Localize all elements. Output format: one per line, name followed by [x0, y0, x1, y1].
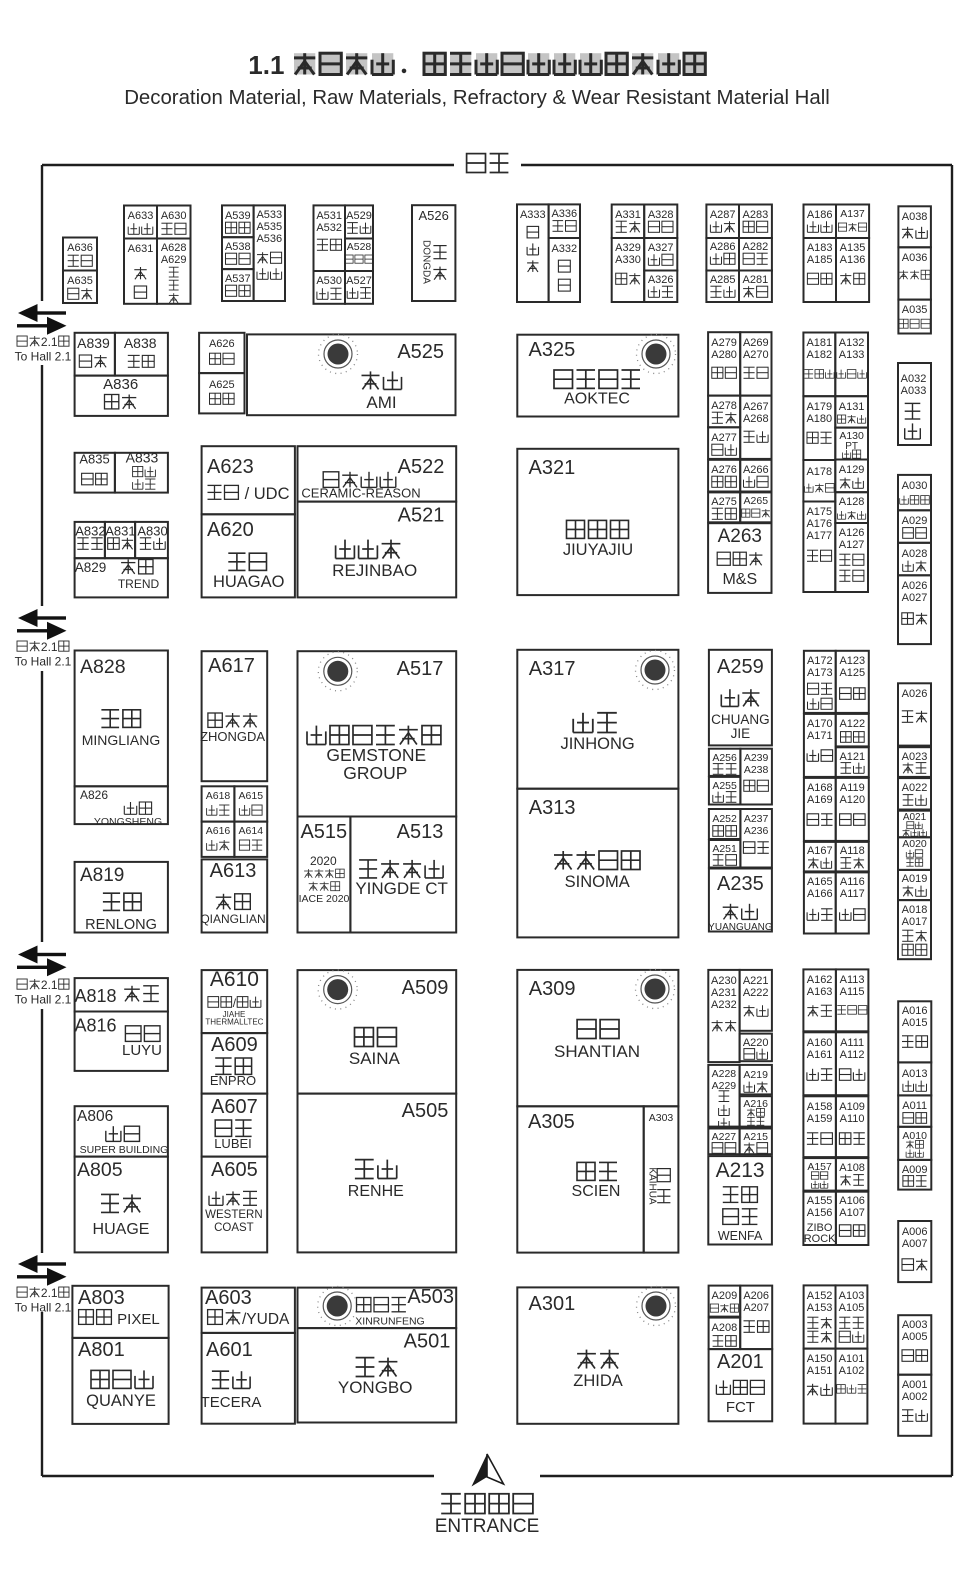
- svg-text:A020: A020: [902, 838, 927, 850]
- svg-text:A165: A165: [807, 876, 833, 888]
- svg-text:A278: A278: [711, 400, 737, 412]
- svg-text:A232: A232: [711, 999, 737, 1011]
- svg-text:A270: A270: [743, 349, 769, 361]
- svg-text:HUAGE: HUAGE: [93, 1221, 150, 1238]
- svg-text:A818: A818: [74, 986, 116, 1006]
- svg-text:ENPRO: ENPRO: [210, 1073, 256, 1088]
- svg-text:A527: A527: [346, 275, 372, 287]
- svg-text:A536: A536: [256, 233, 282, 245]
- svg-text:A616: A616: [206, 825, 231, 837]
- svg-text:ROCK: ROCK: [804, 1233, 836, 1245]
- svg-text:A155: A155: [807, 1195, 833, 1207]
- svg-text:QIANGLIAN: QIANGLIAN: [200, 912, 265, 926]
- svg-text:A238: A238: [744, 764, 769, 776]
- svg-text:A175: A175: [806, 506, 832, 518]
- svg-text:A105: A105: [839, 1302, 865, 1314]
- svg-text:A180: A180: [806, 413, 832, 425]
- svg-text:A256: A256: [712, 752, 737, 764]
- svg-text:A153: A153: [807, 1302, 833, 1314]
- svg-text:HUAGAO: HUAGAO: [213, 573, 285, 591]
- svg-text:RENHE: RENHE: [348, 1183, 404, 1200]
- svg-text:A539: A539: [225, 210, 251, 222]
- svg-text:DONGDA: DONGDA: [421, 240, 432, 284]
- svg-text:YONGSHENG: YONGSHENG: [94, 816, 162, 828]
- svg-text:A530: A530: [316, 275, 342, 287]
- svg-text:A206: A206: [743, 1290, 769, 1302]
- svg-text:A215: A215: [743, 1131, 768, 1143]
- svg-text:GROUP: GROUP: [343, 763, 407, 783]
- svg-text:A018: A018: [902, 904, 928, 916]
- svg-text:A826: A826: [80, 788, 108, 802]
- svg-text:2020: 2020: [310, 854, 337, 868]
- svg-text:2.1: 2.1: [41, 1286, 58, 1300]
- svg-text:A268: A268: [743, 413, 769, 425]
- svg-text:A001: A001: [902, 1379, 928, 1391]
- svg-text:A326: A326: [648, 274, 674, 286]
- svg-text:A136: A136: [840, 254, 866, 266]
- svg-text:A805: A805: [77, 1159, 123, 1181]
- svg-text:A330: A330: [615, 254, 641, 266]
- svg-text:A526: A526: [419, 208, 449, 223]
- svg-text:A832: A832: [75, 524, 105, 539]
- svg-text:A125: A125: [839, 667, 865, 679]
- svg-text:A126: A126: [839, 527, 865, 539]
- svg-text:LUYU: LUYU: [122, 1042, 162, 1059]
- svg-text:To Hall 2.1: To Hall 2.1: [15, 993, 72, 1007]
- svg-text:A201: A201: [717, 1351, 764, 1373]
- svg-text:A209: A209: [712, 1290, 738, 1302]
- svg-text:A186: A186: [807, 209, 833, 221]
- svg-text:To Hall 2.1: To Hall 2.1: [15, 350, 72, 364]
- svg-text:A630: A630: [161, 210, 187, 222]
- svg-text:A178: A178: [806, 466, 832, 478]
- svg-text:A265: A265: [744, 495, 769, 507]
- svg-text:A235: A235: [717, 873, 764, 895]
- svg-text:A152: A152: [807, 1290, 833, 1302]
- svg-text:A269: A269: [743, 337, 769, 349]
- svg-text:A829: A829: [75, 560, 107, 575]
- svg-text:A228: A228: [712, 1068, 737, 1080]
- svg-text:A252: A252: [712, 813, 737, 825]
- svg-text:A309: A309: [529, 978, 576, 1000]
- svg-text:A605: A605: [211, 1159, 258, 1181]
- svg-text:A027: A027: [902, 592, 928, 604]
- svg-text:A277: A277: [711, 432, 737, 444]
- svg-text:A236: A236: [744, 825, 769, 837]
- svg-text:A635: A635: [67, 275, 93, 287]
- svg-text:A017: A017: [902, 916, 928, 928]
- svg-text:A529: A529: [346, 210, 372, 222]
- svg-text:A221: A221: [743, 975, 769, 987]
- svg-text:SCIEN: SCIEN: [572, 1183, 621, 1200]
- svg-text:A177: A177: [806, 530, 832, 542]
- svg-text:XINRUNFENG: XINRUNFENG: [355, 1315, 424, 1327]
- svg-text:A115: A115: [840, 986, 865, 998]
- svg-text:A537: A537: [225, 273, 251, 285]
- svg-text:A816: A816: [74, 1016, 116, 1036]
- svg-text:2.1: 2.1: [41, 978, 58, 992]
- svg-text:A117: A117: [840, 888, 865, 900]
- svg-text:A220: A220: [743, 1037, 769, 1049]
- svg-text:M&S: M&S: [722, 571, 757, 588]
- svg-text:A022: A022: [902, 782, 928, 794]
- svg-text:ZHONGDA: ZHONGDA: [200, 729, 265, 744]
- svg-text:A610: A610: [210, 968, 259, 991]
- svg-text:A629: A629: [161, 254, 187, 266]
- svg-text:A102: A102: [839, 1365, 865, 1377]
- svg-text:SUPER BUILDING: SUPER BUILDING: [80, 1144, 169, 1156]
- svg-text:A267: A267: [743, 401, 769, 413]
- svg-text:A303: A303: [649, 1112, 674, 1124]
- svg-text:A636: A636: [67, 242, 93, 254]
- svg-text:A535: A535: [256, 221, 282, 233]
- svg-text:A032: A032: [901, 373, 927, 385]
- svg-text:A607: A607: [211, 1096, 258, 1118]
- svg-text:RENLONG: RENLONG: [85, 917, 157, 933]
- svg-text:ZHIDA: ZHIDA: [573, 1372, 623, 1390]
- svg-text:A328: A328: [648, 209, 674, 221]
- svg-text:A603: A603: [205, 1287, 252, 1309]
- svg-text:A011: A011: [902, 1100, 927, 1112]
- svg-text:A015: A015: [902, 1017, 928, 1029]
- svg-text:/ UDC: / UDC: [240, 485, 290, 503]
- svg-text:A327: A327: [648, 242, 674, 254]
- svg-text:WENFA: WENFA: [718, 1229, 763, 1243]
- svg-text:A123: A123: [839, 655, 865, 667]
- svg-text:A121: A121: [839, 751, 865, 763]
- svg-text:A329: A329: [615, 242, 641, 254]
- svg-text:A819: A819: [80, 865, 124, 886]
- svg-text:A528: A528: [347, 241, 372, 253]
- svg-text:A166: A166: [807, 888, 833, 900]
- svg-text:A156: A156: [807, 1207, 833, 1219]
- svg-text:THERMALLTEC: THERMALLTEC: [205, 1018, 263, 1027]
- svg-text:A172: A172: [807, 655, 833, 667]
- svg-text:A128: A128: [839, 496, 865, 508]
- svg-text:A019: A019: [902, 873, 928, 885]
- svg-text:A116: A116: [840, 876, 865, 888]
- svg-text:A831: A831: [105, 524, 135, 539]
- svg-text:IACE 2020: IACE 2020: [299, 893, 350, 905]
- svg-text:A101: A101: [839, 1353, 865, 1365]
- svg-text:A517: A517: [397, 658, 444, 680]
- svg-text:A336: A336: [551, 208, 577, 220]
- svg-text:A313: A313: [529, 797, 576, 819]
- svg-text:A026: A026: [902, 580, 928, 592]
- svg-text:A503: A503: [407, 1286, 454, 1308]
- svg-text:A157: A157: [807, 1161, 832, 1173]
- svg-text:A150: A150: [807, 1353, 833, 1365]
- svg-text:A321: A321: [529, 457, 576, 479]
- svg-text:A830: A830: [137, 524, 167, 539]
- svg-text:ENTRANCE: ENTRANCE: [435, 1516, 540, 1537]
- svg-text:A231: A231: [711, 987, 737, 999]
- svg-text:A613: A613: [210, 860, 257, 882]
- svg-text:A515: A515: [300, 821, 347, 843]
- svg-text:A633: A633: [128, 210, 154, 222]
- svg-text:A151: A151: [807, 1365, 833, 1377]
- svg-text:A509: A509: [402, 977, 449, 999]
- svg-text:A305: A305: [528, 1111, 575, 1133]
- svg-text:A035: A035: [902, 304, 928, 316]
- svg-text:A110: A110: [840, 1113, 865, 1125]
- svg-text:TREND: TREND: [118, 577, 160, 591]
- svg-text:A229: A229: [712, 1080, 737, 1092]
- svg-text:A625: A625: [209, 379, 235, 391]
- svg-text:JINHONG: JINHONG: [560, 735, 634, 753]
- svg-text:A219: A219: [743, 1069, 768, 1081]
- svg-text:A501: A501: [404, 1331, 451, 1353]
- svg-text:A626: A626: [209, 338, 235, 350]
- svg-text:AOKTEC: AOKTEC: [564, 391, 630, 408]
- svg-text:A601: A601: [206, 1339, 253, 1361]
- svg-text:A255: A255: [712, 780, 737, 792]
- svg-text:A325: A325: [529, 339, 576, 361]
- svg-text:A006: A006: [902, 1226, 928, 1238]
- svg-text:A266: A266: [743, 464, 769, 476]
- svg-text:1.1: 1.1: [248, 50, 291, 80]
- svg-text:A609: A609: [211, 1034, 258, 1056]
- svg-text:To Hall 2.1: To Hall 2.1: [15, 655, 72, 669]
- svg-text:PIXEL: PIXEL: [113, 1311, 160, 1328]
- svg-text:A176: A176: [806, 518, 832, 530]
- svg-text:A179: A179: [806, 401, 832, 413]
- svg-text:A259: A259: [717, 656, 764, 678]
- svg-text:A227: A227: [712, 1131, 737, 1143]
- svg-text:A137: A137: [840, 208, 865, 220]
- svg-text:A162: A162: [807, 974, 833, 986]
- svg-text:SAINA: SAINA: [349, 1049, 401, 1068]
- svg-text:A333: A333: [520, 209, 546, 221]
- svg-text:A181: A181: [806, 337, 832, 349]
- svg-text:A016: A016: [902, 1005, 928, 1017]
- svg-text:A161: A161: [807, 1049, 833, 1061]
- svg-text:A005: A005: [902, 1331, 928, 1343]
- svg-text:A023: A023: [902, 751, 928, 763]
- svg-text:TECERA: TECERA: [201, 1394, 262, 1411]
- svg-text:A036: A036: [902, 252, 928, 264]
- svg-text:A623: A623: [207, 456, 254, 478]
- svg-text:A003: A003: [902, 1319, 928, 1331]
- svg-text:A521: A521: [398, 505, 445, 527]
- svg-text:A119: A119: [840, 782, 865, 794]
- svg-text:A026: A026: [902, 688, 928, 700]
- svg-text:A213: A213: [716, 1159, 765, 1182]
- svg-text:A281: A281: [743, 274, 769, 286]
- svg-text:A505: A505: [402, 1100, 449, 1122]
- svg-text:A239: A239: [744, 752, 769, 764]
- svg-text:A531: A531: [316, 210, 342, 222]
- svg-text:A618: A618: [206, 790, 231, 802]
- svg-text:A163: A163: [807, 986, 833, 998]
- svg-text:A631: A631: [128, 243, 154, 255]
- svg-text:JIE: JIE: [731, 726, 751, 741]
- svg-text:A207: A207: [743, 1302, 769, 1314]
- svg-text:A158: A158: [807, 1101, 833, 1113]
- svg-text:To Hall 2.1: To Hall 2.1: [15, 1301, 72, 1315]
- svg-text:A113: A113: [840, 974, 865, 986]
- svg-text:A532: A532: [316, 222, 342, 234]
- svg-text:A007: A007: [902, 1238, 928, 1250]
- svg-text:A285: A285: [710, 274, 736, 286]
- svg-text:A835: A835: [79, 452, 109, 467]
- svg-text:A002: A002: [902, 1391, 928, 1403]
- svg-text:COAST: COAST: [214, 1222, 254, 1234]
- svg-text:YONGBO: YONGBO: [338, 1378, 413, 1397]
- svg-text:WESTERN: WESTERN: [205, 1209, 263, 1221]
- svg-text:A135: A135: [840, 242, 866, 254]
- svg-text:A131: A131: [839, 401, 865, 413]
- svg-text:A282: A282: [743, 241, 769, 253]
- svg-text:A127: A127: [839, 539, 865, 551]
- svg-text:A287: A287: [710, 209, 736, 221]
- svg-text:A183: A183: [807, 242, 833, 254]
- svg-text:A806: A806: [77, 1108, 113, 1125]
- svg-text:GEMSTONE: GEMSTONE: [326, 745, 426, 765]
- svg-text:A513: A513: [397, 821, 444, 843]
- svg-text:A185: A185: [807, 254, 833, 266]
- svg-text:A171: A171: [807, 730, 833, 742]
- svg-text:YINGDE CT: YINGDE CT: [355, 879, 448, 898]
- svg-text:A170: A170: [807, 718, 833, 730]
- svg-text:LUBEI: LUBEI: [214, 1136, 252, 1151]
- svg-text:A120: A120: [839, 794, 865, 806]
- svg-text:A301: A301: [529, 1293, 576, 1315]
- svg-text:A251: A251: [712, 843, 737, 855]
- svg-text:MINGLIANG: MINGLIANG: [82, 732, 161, 748]
- svg-text:A103: A103: [839, 1290, 865, 1302]
- svg-text:A522: A522: [398, 456, 445, 478]
- svg-text:A230: A230: [711, 975, 737, 987]
- svg-text:A836: A836: [103, 376, 138, 393]
- svg-text:Decoration Material, Raw Mater: Decoration Material, Raw Materials, Refr…: [124, 87, 830, 109]
- svg-text:A317: A317: [529, 658, 576, 680]
- svg-text:A286: A286: [710, 241, 736, 253]
- svg-text:A107: A107: [839, 1207, 865, 1219]
- svg-text:QUANYE: QUANYE: [86, 1392, 156, 1410]
- svg-text:A803: A803: [78, 1287, 125, 1309]
- svg-text:A280: A280: [711, 349, 737, 361]
- svg-text:A222: A222: [743, 987, 769, 999]
- svg-text:A033: A033: [901, 385, 927, 397]
- svg-text:A538: A538: [225, 241, 251, 253]
- svg-text:A029: A029: [902, 515, 928, 527]
- svg-text:KAIHUA: KAIHUA: [647, 1167, 658, 1205]
- svg-text:AMI: AMI: [366, 393, 396, 412]
- svg-text:A620: A620: [207, 519, 254, 541]
- svg-text:A106: A106: [839, 1195, 865, 1207]
- svg-text:A013: A013: [902, 1068, 928, 1080]
- svg-text:A159: A159: [807, 1113, 833, 1125]
- svg-text:A167: A167: [807, 845, 833, 857]
- svg-text:A833: A833: [126, 450, 159, 466]
- svg-text:A615: A615: [239, 790, 264, 802]
- svg-text:A838: A838: [124, 335, 157, 351]
- svg-text:A122: A122: [839, 718, 865, 730]
- svg-text:A021: A021: [903, 812, 927, 823]
- svg-text:A533: A533: [256, 209, 282, 221]
- svg-text:A028: A028: [902, 548, 928, 560]
- svg-text:A332: A332: [551, 243, 577, 255]
- svg-text:A132: A132: [839, 337, 865, 349]
- svg-text:A009: A009: [902, 1164, 928, 1176]
- svg-text:A828: A828: [80, 656, 126, 678]
- svg-text:A275: A275: [711, 496, 737, 508]
- svg-text:A525: A525: [397, 341, 444, 363]
- svg-text:A133: A133: [839, 349, 865, 361]
- svg-text:SINOMA: SINOMA: [565, 873, 630, 891]
- svg-text:A279: A279: [711, 337, 737, 349]
- svg-text:A038: A038: [902, 211, 928, 223]
- svg-text:2.1: 2.1: [41, 335, 58, 349]
- svg-text:A617: A617: [208, 655, 255, 677]
- svg-text:A173: A173: [807, 667, 833, 679]
- svg-text:A263: A263: [718, 526, 762, 547]
- svg-text:A182: A182: [806, 349, 832, 361]
- svg-text:A283: A283: [743, 209, 769, 221]
- svg-text:A614: A614: [239, 825, 264, 837]
- svg-text:CERAMIC-REASON: CERAMIC-REASON: [301, 486, 420, 501]
- svg-text:A628: A628: [161, 242, 187, 254]
- svg-text:2.1: 2.1: [41, 640, 58, 654]
- svg-text:A801: A801: [78, 1339, 125, 1361]
- svg-text:A160: A160: [807, 1037, 833, 1049]
- svg-text:SHANTIAN: SHANTIAN: [554, 1042, 640, 1061]
- svg-text:FCT: FCT: [726, 1399, 755, 1416]
- svg-text:A108: A108: [839, 1162, 865, 1174]
- svg-text:A111: A111: [840, 1037, 864, 1049]
- svg-text:A118: A118: [840, 845, 865, 857]
- svg-text:A208: A208: [712, 1322, 738, 1334]
- svg-text:CHUANG: CHUANG: [711, 712, 770, 727]
- svg-text:A109: A109: [839, 1101, 865, 1113]
- svg-text:A030: A030: [902, 480, 928, 492]
- svg-text:JIUYAJIU: JIUYAJIU: [563, 541, 633, 559]
- svg-text:A169: A169: [807, 794, 833, 806]
- svg-text:/YUDA: /YUDA: [242, 1311, 290, 1328]
- svg-text:A839: A839: [77, 335, 110, 351]
- svg-text:A276: A276: [711, 464, 737, 476]
- svg-text:A129: A129: [839, 464, 865, 476]
- svg-text:A331: A331: [615, 209, 641, 221]
- svg-text:A112: A112: [840, 1049, 865, 1061]
- svg-text:YUANGUANG: YUANGUANG: [708, 922, 773, 933]
- svg-text:A168: A168: [807, 782, 833, 794]
- svg-text:REJINBAO: REJINBAO: [332, 561, 417, 580]
- svg-text:A237: A237: [744, 813, 769, 825]
